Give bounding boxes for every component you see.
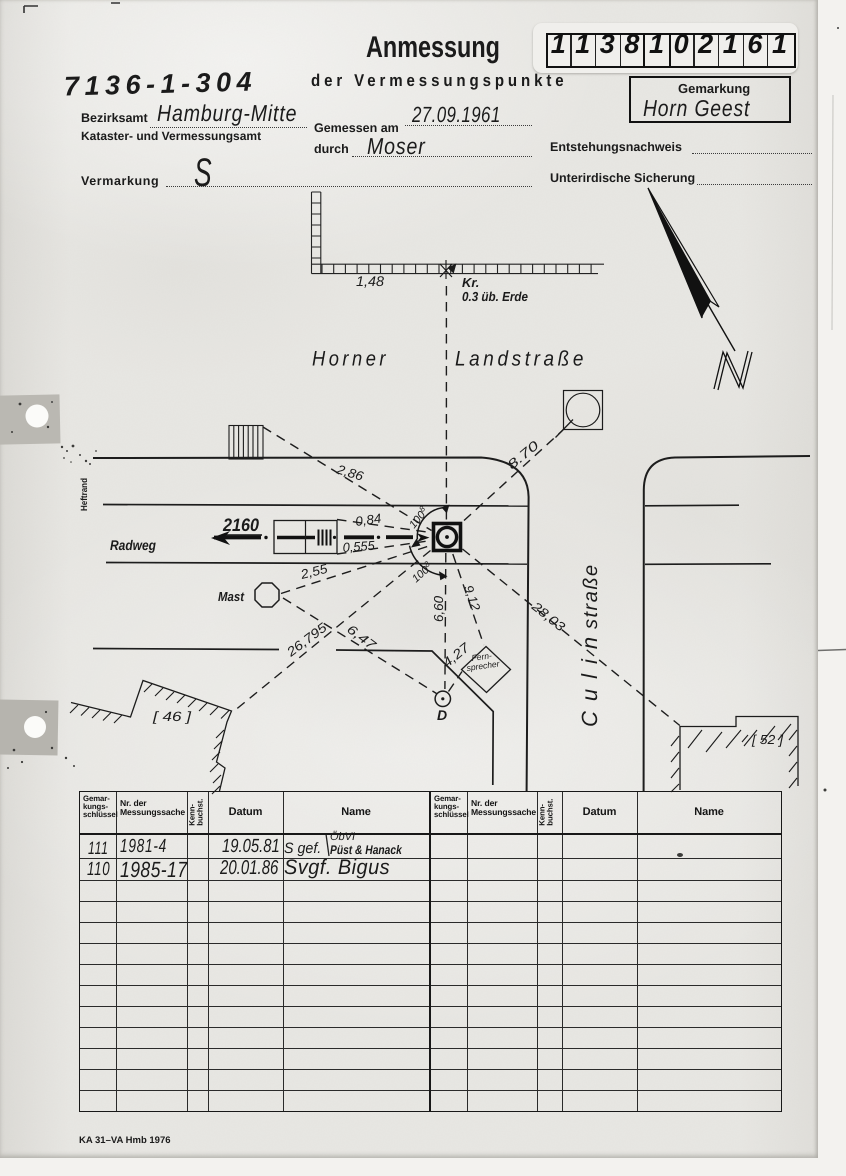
svg-text:Culin: Culin: [577, 627, 602, 727]
svg-text:Mast: Mast: [218, 589, 245, 604]
svg-text:0,84: 0,84: [354, 510, 382, 528]
svg-text:Horner: Horner: [312, 348, 389, 371]
svg-text:6,60: 6,60: [431, 595, 446, 622]
svg-text:0.3 üb. Erde: 0.3 üb. Erde: [462, 289, 528, 304]
svg-text:1008: 1008: [406, 504, 432, 531]
svg-text:Radweg: Radweg: [110, 537, 156, 553]
svg-text:straße: straße: [580, 563, 602, 629]
svg-text:D: D: [437, 707, 447, 723]
svg-text:9,12: 9,12: [461, 583, 483, 612]
svg-text:Kr.: Kr.: [462, 275, 479, 290]
svg-text:1,48: 1,48: [356, 273, 384, 289]
svg-text:0,555: 0,555: [342, 538, 376, 555]
svg-text:[ 52 ]: [ 52 ]: [751, 732, 783, 747]
svg-text:Heftrand: Heftrand: [79, 478, 89, 511]
svg-text:28,03: 28,03: [528, 598, 569, 635]
svg-text:6,47: 6,47: [344, 621, 379, 653]
svg-text:26,795: 26,795: [283, 619, 330, 660]
svg-text:Landstraße: Landstraße: [455, 348, 587, 371]
svg-text:[ 46 ]: [ 46 ]: [152, 709, 193, 724]
svg-text:2160: 2160: [222, 515, 259, 535]
